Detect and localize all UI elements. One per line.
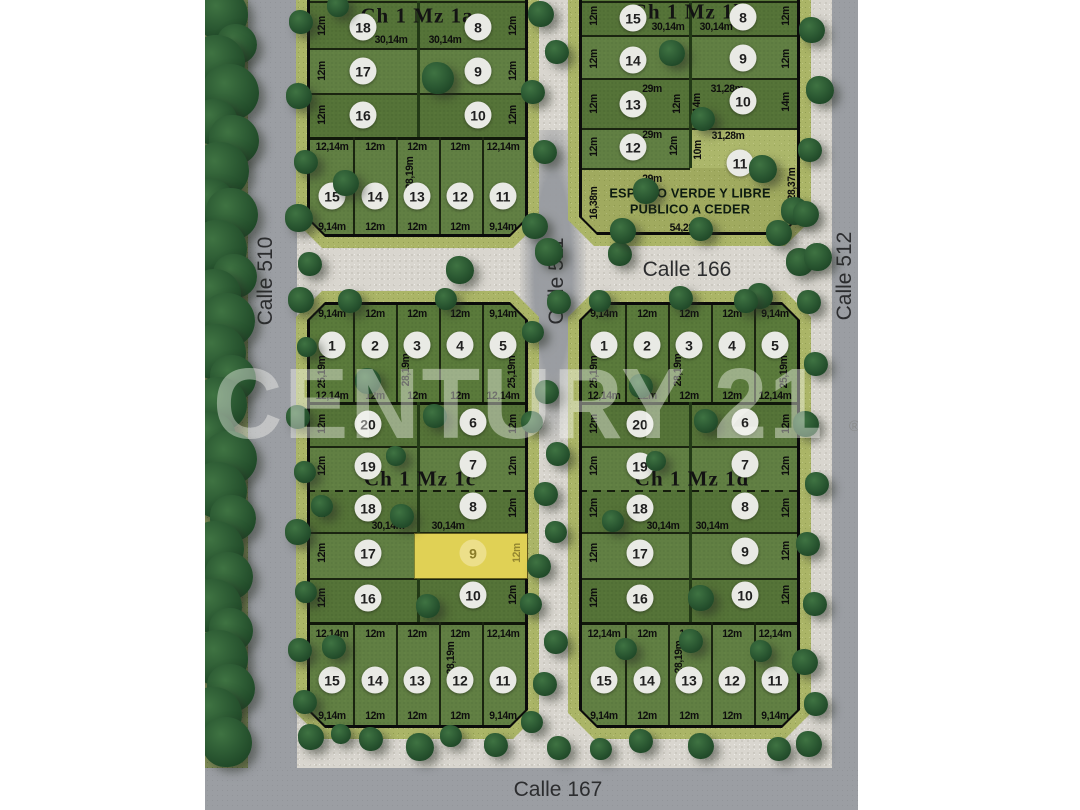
lot-number-12: 12: [620, 134, 647, 161]
block-title: Ch 1 Mz 1a: [360, 4, 473, 29]
dimension-label: 30,14m: [375, 34, 408, 46]
dimension-label: 12m: [780, 498, 792, 518]
tree-icon: [734, 289, 758, 313]
lot-divider-line: [482, 137, 484, 235]
tree-icon: [322, 635, 346, 659]
lot-number-18: 18: [627, 495, 654, 522]
tree-icon: [202, 717, 252, 767]
tree-icon: [544, 630, 568, 654]
lot-divider-line: [482, 622, 484, 725]
tree-icon: [547, 290, 571, 314]
lot-number-8: 8: [465, 14, 492, 41]
lot-boundary-line: [579, 622, 800, 625]
tree-icon: [294, 150, 318, 174]
lot-divider-line: [439, 622, 441, 725]
tree-icon: [669, 286, 693, 310]
lot-number-15: 15: [620, 5, 647, 32]
dimension-label: 12m: [407, 710, 427, 722]
dimension-label: 9,14m: [318, 221, 345, 233]
dimension-label: 12m: [588, 498, 600, 518]
lot-number-13: 13: [404, 667, 431, 694]
lot-number-9: 9: [465, 58, 492, 85]
tree-icon: [545, 40, 569, 64]
tree-icon: [688, 585, 714, 611]
dimension-label: 12m: [588, 49, 600, 69]
site-plan: CENTURY 21 ® Ch 1 Mz 1a18817916101514131…: [0, 0, 1080, 810]
dimension-label: 12m: [637, 308, 657, 320]
dimension-label: 30,14m: [647, 520, 680, 532]
dimension-label: 9,14m: [489, 710, 516, 722]
dimension-label: 10m: [692, 140, 704, 160]
lot-divider-line: [396, 622, 398, 725]
lot-number-16: 16: [350, 102, 377, 129]
dimension-label: 12m: [365, 628, 385, 640]
dimension-label: 30,14m: [432, 520, 465, 532]
tree-icon: [806, 76, 834, 104]
lot-number-13: 13: [676, 667, 703, 694]
dimension-label: 12m: [780, 585, 792, 605]
street-label-calle-512: Calle 512: [833, 232, 857, 321]
dimension-label: 12m: [507, 585, 519, 605]
tree-icon: [293, 690, 317, 714]
lot-number-12: 12: [447, 667, 474, 694]
dimension-label: 12,14m: [588, 628, 621, 640]
lot-number-15: 15: [591, 667, 618, 694]
tree-icon: [298, 252, 322, 276]
lot-number-18: 18: [350, 14, 377, 41]
tree-icon: [804, 692, 828, 716]
dimension-label: 31,28m: [712, 130, 745, 142]
tree-icon: [615, 638, 637, 660]
lot-number-10: 10: [460, 582, 487, 609]
dimension-label: 9,14m: [489, 221, 516, 233]
tree-icon: [633, 178, 659, 204]
lot-divider-line: [439, 137, 441, 235]
tree-icon: [590, 738, 612, 760]
dimension-label: 12m: [588, 137, 600, 157]
tree-icon: [535, 238, 563, 266]
tree-icon: [289, 10, 313, 34]
dimension-label: 12m: [507, 61, 519, 81]
tree-icon: [521, 80, 545, 104]
tree-icon: [691, 107, 715, 131]
tree-icon: [750, 640, 772, 662]
dimension-label: 12m: [511, 543, 523, 563]
dimension-label: 12m: [450, 308, 470, 320]
dimension-label: 12m: [316, 543, 328, 563]
tree-icon: [527, 554, 551, 578]
dimension-label: 9,14m: [761, 308, 788, 320]
tree-icon: [547, 736, 571, 760]
tree-icon: [749, 155, 777, 183]
lot-number-9: 9: [460, 540, 487, 567]
tree-icon: [767, 737, 791, 761]
dimension-label: 12,14m: [487, 141, 520, 153]
tree-icon: [416, 594, 440, 618]
lot-number-8: 8: [732, 493, 759, 520]
tree-icon: [390, 504, 414, 528]
lot-number-17: 17: [355, 540, 382, 567]
lot-divider-line: [353, 622, 355, 725]
dimension-label: 12m: [588, 94, 600, 114]
tree-icon: [534, 482, 558, 506]
lot-number-12: 12: [719, 667, 746, 694]
dimension-label: 12m: [722, 628, 742, 640]
right-margin: [858, 0, 1080, 810]
tree-icon: [288, 638, 312, 662]
lot-number-14: 14: [620, 47, 647, 74]
tree-icon: [545, 521, 567, 543]
tree-icon: [298, 724, 324, 750]
tree-icon: [521, 711, 543, 733]
dimension-label: 12m: [588, 588, 600, 608]
dimension-label: 16,38m: [588, 187, 600, 220]
street-label-calle-166: Calle 166: [643, 258, 732, 282]
lot-divider-line: [668, 622, 670, 725]
tree-icon: [589, 290, 611, 312]
street-label-calle-510: Calle 510: [254, 237, 278, 326]
lot-number-11: 11: [490, 667, 517, 694]
dimension-label: 12m: [668, 136, 680, 156]
lot-number-14: 14: [634, 667, 661, 694]
tree-icon: [286, 83, 312, 109]
lot-number-13: 13: [404, 183, 431, 210]
dimension-label: 12,14m: [759, 628, 792, 640]
lot-number-17: 17: [350, 58, 377, 85]
tree-icon: [796, 532, 820, 556]
dimension-label: 12m: [637, 628, 657, 640]
dimension-label: 12m: [316, 16, 328, 36]
dimension-label: 12m: [450, 141, 470, 153]
tree-icon: [679, 629, 703, 653]
dimension-label: 12m: [316, 588, 328, 608]
lot-number-10: 10: [465, 102, 492, 129]
lot-number-10: 10: [730, 88, 757, 115]
tree-icon: [803, 592, 827, 616]
dimension-label: 12m: [365, 710, 385, 722]
tree-icon: [331, 724, 351, 744]
dimension-label: 12m: [722, 710, 742, 722]
dimension-label: 12m: [316, 105, 328, 125]
dimension-label: 12m: [407, 141, 427, 153]
tree-icon: [766, 220, 792, 246]
tree-icon: [446, 256, 474, 284]
dimension-label: 29m: [642, 129, 662, 141]
tree-icon: [295, 581, 317, 603]
tree-icon: [799, 17, 825, 43]
lot-number-10: 10: [732, 582, 759, 609]
lot-boundary-line: [307, 137, 528, 140]
dimension-label: 30,14m: [429, 34, 462, 46]
tree-icon: [798, 138, 822, 162]
lot-number-15: 15: [319, 667, 346, 694]
dimension-label: 12m: [780, 6, 792, 26]
lot-number-9: 9: [732, 538, 759, 565]
lot-number-13: 13: [620, 91, 647, 118]
dimension-label: 12m: [407, 628, 427, 640]
dimension-label: 12m: [588, 6, 600, 26]
street-label-calle-167: Calle 167: [514, 778, 603, 802]
dimension-label: 14m: [780, 92, 792, 112]
dimension-label: 12,14m: [487, 628, 520, 640]
dimension-label: 12m: [365, 141, 385, 153]
tree-icon: [689, 217, 713, 241]
dimension-label: 12m: [365, 221, 385, 233]
lot-number-17: 17: [627, 540, 654, 567]
dimension-label: 12m: [450, 221, 470, 233]
tree-icon: [285, 204, 313, 232]
tree-icon: [522, 213, 548, 239]
dimension-label: 12m: [365, 308, 385, 320]
tree-icon: [311, 495, 333, 517]
left-margin: [0, 0, 205, 810]
dimension-label: 9,14m: [590, 710, 617, 722]
tree-icon: [338, 289, 362, 313]
tree-icon: [528, 1, 554, 27]
dimension-label: 12,14m: [316, 141, 349, 153]
tree-icon: [629, 729, 653, 753]
lot-number-9: 9: [730, 45, 757, 72]
dimension-label: 9,14m: [489, 308, 516, 320]
dimension-label: 12m: [407, 308, 427, 320]
lot-number-11: 11: [762, 667, 789, 694]
lot-number-12: 12: [447, 183, 474, 210]
tree-icon: [484, 733, 508, 757]
dimension-label: 9,14m: [318, 710, 345, 722]
tree-icon: [796, 731, 822, 757]
dimension-label: 28,37m: [786, 168, 798, 201]
tree-icon: [333, 170, 359, 196]
lot-number-18: 18: [355, 495, 382, 522]
dimension-label: 12m: [780, 49, 792, 69]
dimension-label: 12m: [316, 61, 328, 81]
tree-icon: [688, 733, 714, 759]
tree-icon: [359, 727, 383, 751]
dimension-label: 12m: [507, 498, 519, 518]
tree-icon: [533, 140, 557, 164]
lot-number-16: 16: [355, 585, 382, 612]
tree-icon: [522, 321, 544, 343]
dimension-label: 9,14m: [761, 710, 788, 722]
lot-number-11: 11: [490, 183, 517, 210]
tree-icon: [435, 288, 457, 310]
dimension-label: 12m: [507, 16, 519, 36]
tree-icon: [792, 649, 818, 675]
dimension-label: 12m: [679, 710, 699, 722]
tree-icon: [659, 40, 685, 66]
dimension-label: 29m: [642, 83, 662, 95]
tree-icon: [294, 461, 316, 483]
lot-divider-line: [711, 622, 713, 725]
lot-number-16: 16: [627, 585, 654, 612]
tree-icon: [805, 472, 829, 496]
dimension-label: 12m: [780, 541, 792, 561]
lot-boundary-line: [579, 168, 690, 170]
lot-boundary-line: [307, 622, 528, 625]
tree-icon: [608, 242, 632, 266]
lot-number-14: 14: [362, 667, 389, 694]
tree-icon: [533, 672, 557, 696]
dimension-label: 30,14m: [696, 520, 729, 532]
lot-divider-line: [754, 622, 756, 725]
lot-number-14: 14: [362, 183, 389, 210]
lot-number-8: 8: [730, 4, 757, 31]
tree-icon: [793, 201, 819, 227]
dimension-label: 12m: [450, 628, 470, 640]
tree-icon: [602, 510, 624, 532]
tree-icon: [797, 290, 821, 314]
lot-divider-line: [396, 137, 398, 235]
tree-icon: [288, 287, 314, 313]
dimension-label: 12m: [450, 710, 470, 722]
tree-icon: [520, 593, 542, 615]
lot-number-8: 8: [460, 493, 487, 520]
dimension-label: 12m: [507, 105, 519, 125]
tree-icon: [440, 725, 462, 747]
watermark: CENTURY 21: [213, 350, 847, 462]
tree-icon: [610, 218, 636, 244]
dimension-label: 12m: [588, 543, 600, 563]
dimension-label: 12m: [407, 221, 427, 233]
dimension-label: 12m: [637, 710, 657, 722]
tree-icon: [422, 62, 454, 94]
tree-icon: [804, 243, 832, 271]
tree-icon: [285, 519, 311, 545]
tree-icon: [406, 733, 434, 761]
dimension-label: 12m: [671, 94, 683, 114]
